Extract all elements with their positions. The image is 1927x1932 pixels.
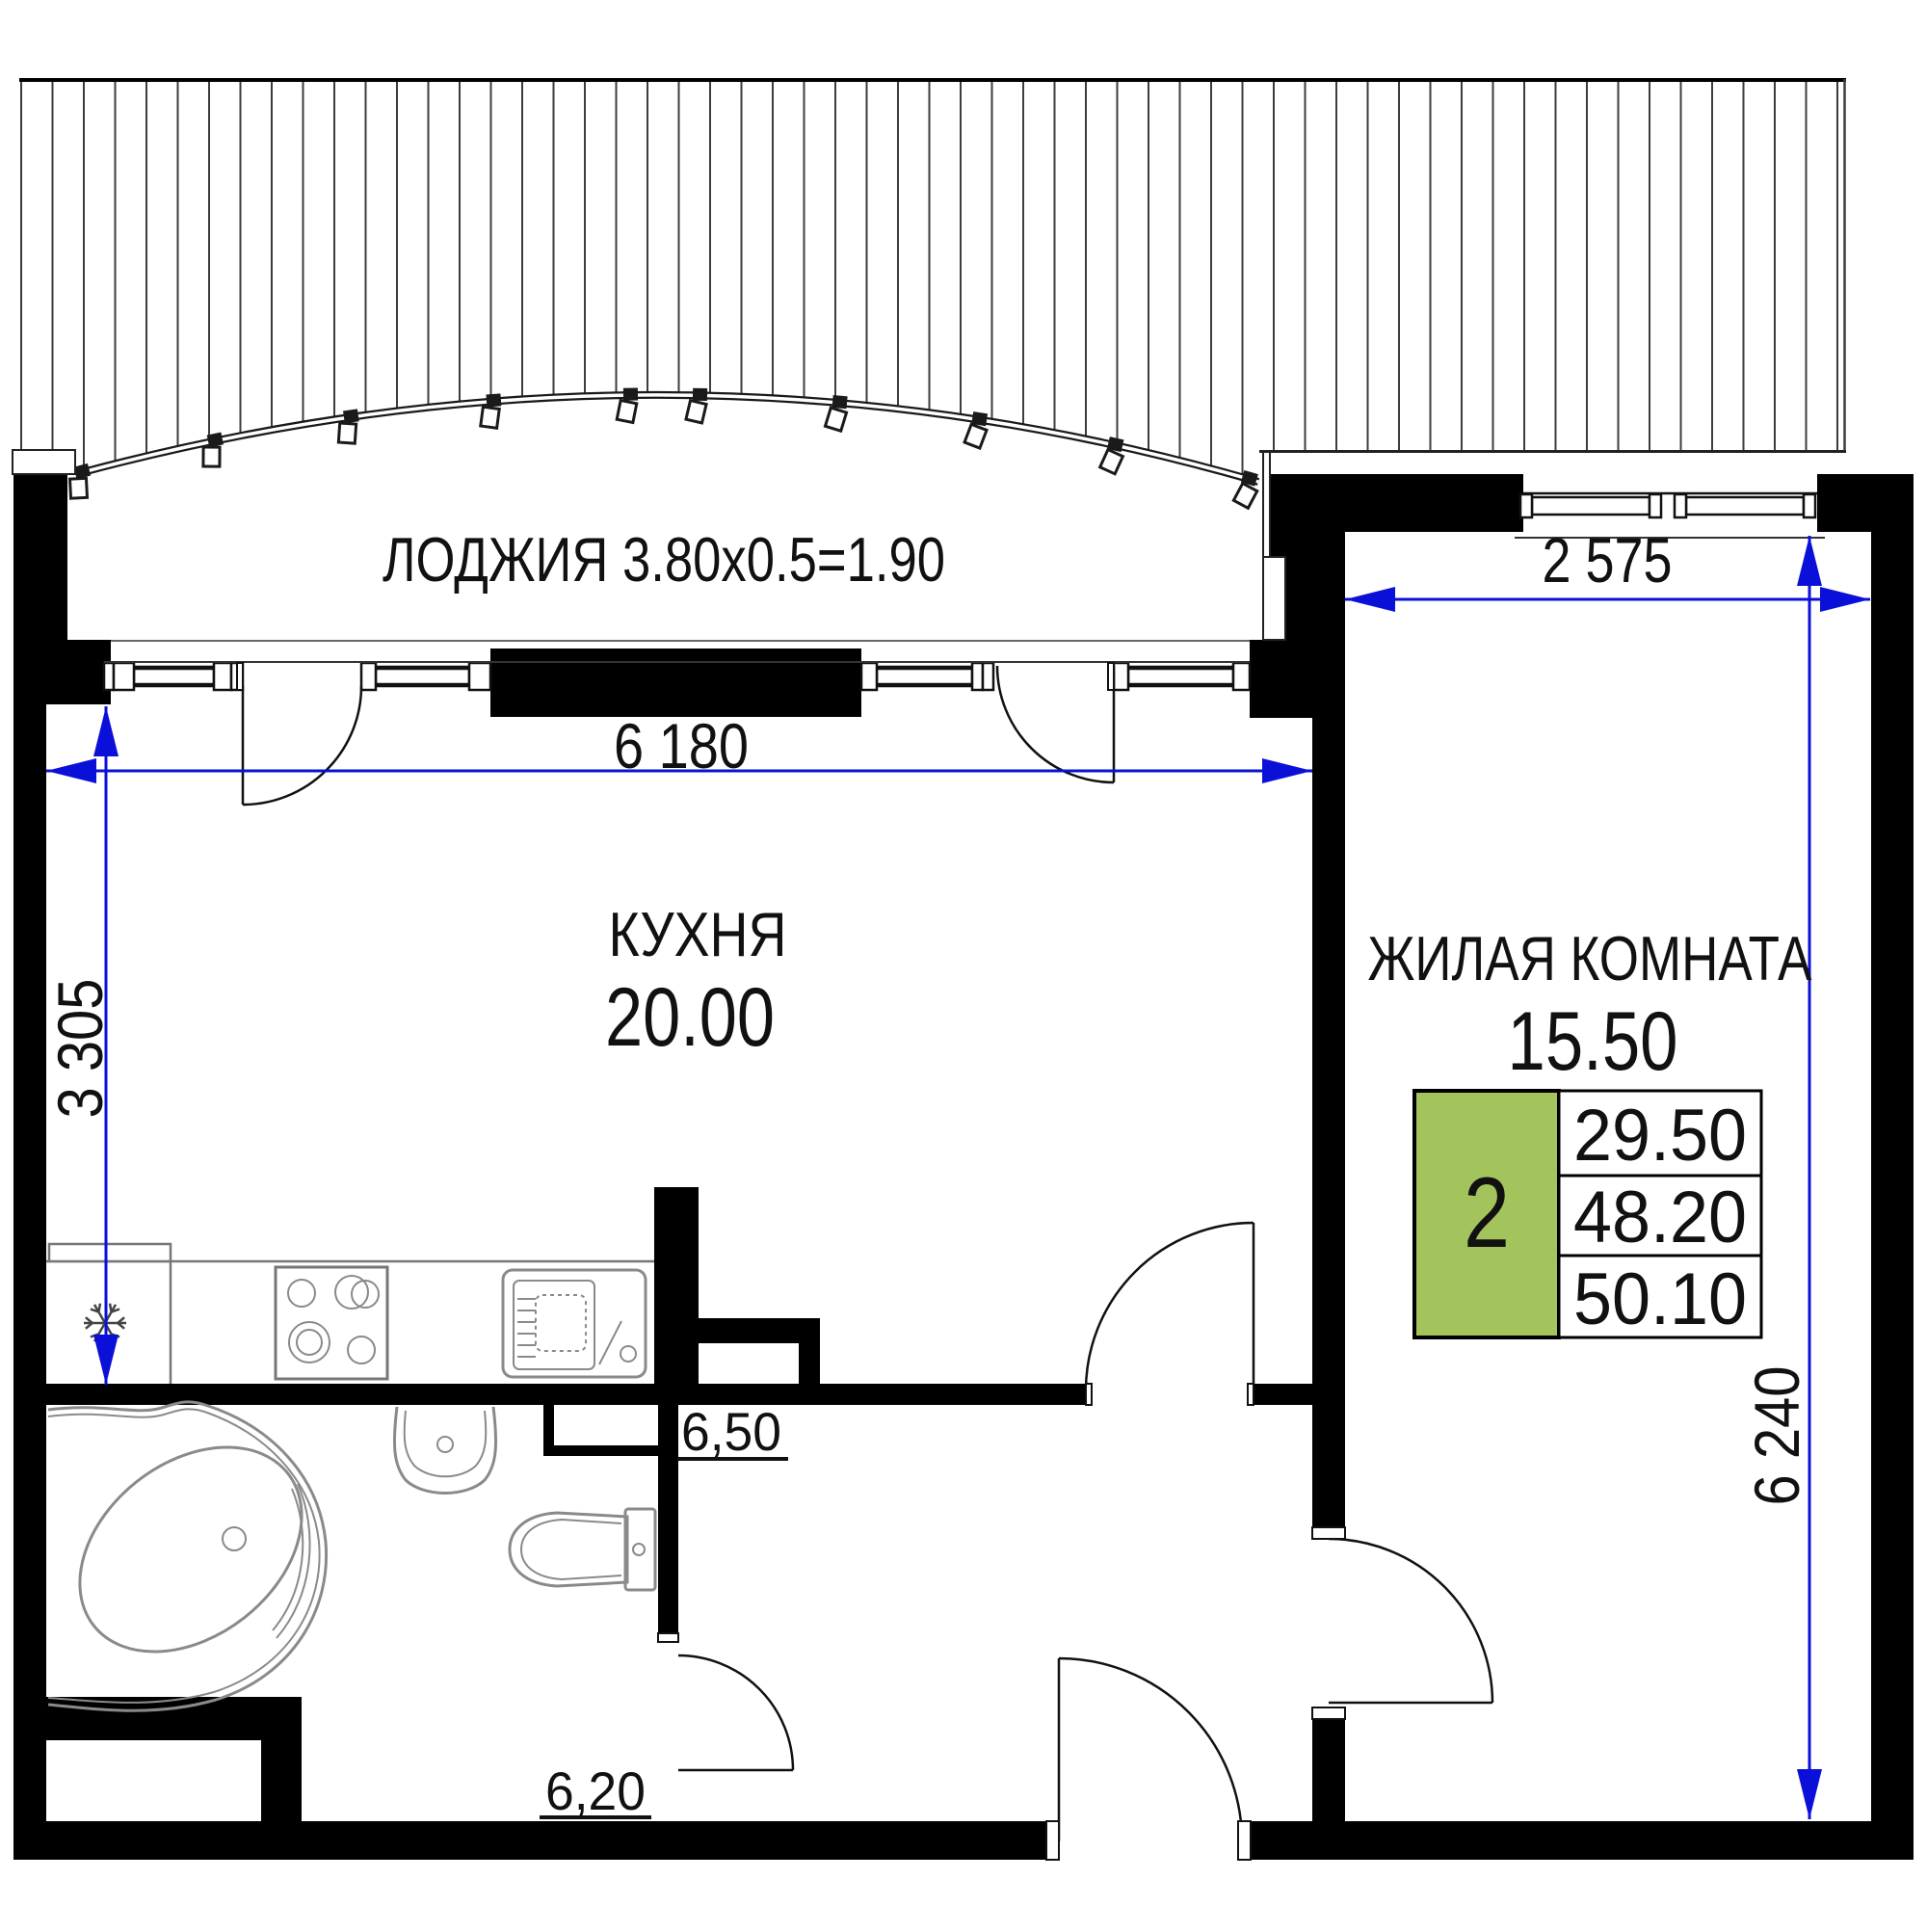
- svg-text:ЛОДЖИЯ 3.80х0.5=1.90: ЛОДЖИЯ 3.80х0.5=1.90: [383, 524, 945, 595]
- svg-text:2 575: 2 575: [1543, 524, 1673, 595]
- svg-text:6,50: 6,50: [681, 1401, 781, 1462]
- svg-text:2: 2: [1464, 1157, 1510, 1269]
- svg-text:29.50: 29.50: [1573, 1095, 1747, 1177]
- svg-text:48.20: 48.20: [1573, 1177, 1747, 1258]
- svg-text:КУХНЯ: КУХНЯ: [609, 899, 787, 969]
- svg-text:6 240: 6 240: [1741, 1366, 1812, 1506]
- svg-text:6 180: 6 180: [614, 710, 749, 781]
- svg-text:20.00: 20.00: [605, 971, 775, 1064]
- svg-text:15.50: 15.50: [1508, 995, 1678, 1088]
- svg-text:6,20: 6,20: [545, 1760, 646, 1821]
- svg-text:ЖИЛАЯ КОМНАТА: ЖИЛАЯ КОМНАТА: [1368, 923, 1813, 993]
- svg-text:50.10: 50.10: [1573, 1258, 1747, 1340]
- svg-text:3 305: 3 305: [44, 979, 116, 1119]
